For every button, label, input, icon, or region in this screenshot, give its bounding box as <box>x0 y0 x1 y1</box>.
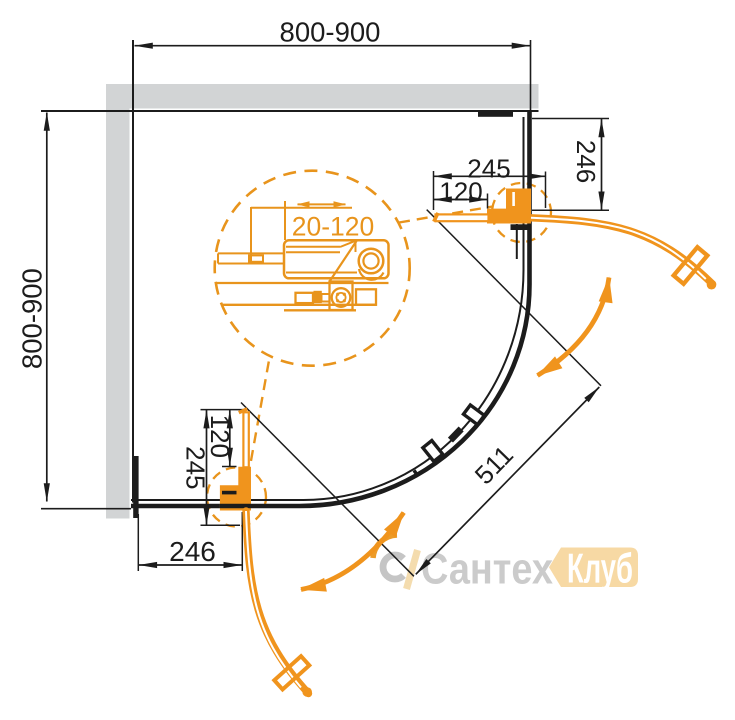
svg-text:Сантех: Сантех <box>421 545 553 594</box>
svg-text:Клуб: Клуб <box>567 545 633 592</box>
svg-text:800-900: 800-900 <box>17 268 48 369</box>
svg-text:120: 120 <box>439 176 482 206</box>
svg-text:511: 511 <box>469 440 519 491</box>
svg-text:20-120: 20-120 <box>292 212 375 242</box>
svg-text:246: 246 <box>571 140 601 183</box>
svg-text:120: 120 <box>205 415 235 458</box>
svg-text:246: 246 <box>169 536 216 567</box>
svg-text:800-900: 800-900 <box>280 17 381 48</box>
